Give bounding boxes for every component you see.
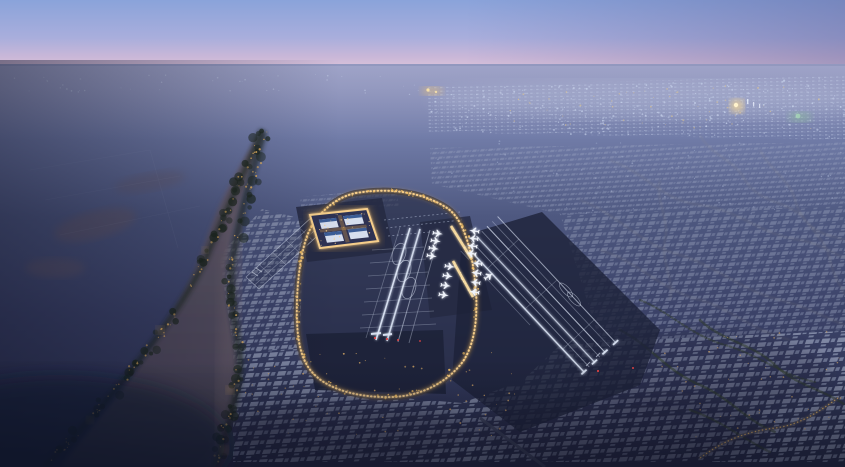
city-green-glow	[788, 112, 812, 122]
aerial-dusk-render	[0, 0, 845, 467]
render-canvas	[0, 0, 845, 467]
midground-gold-cluster	[421, 87, 443, 95]
sky	[0, 0, 845, 69]
